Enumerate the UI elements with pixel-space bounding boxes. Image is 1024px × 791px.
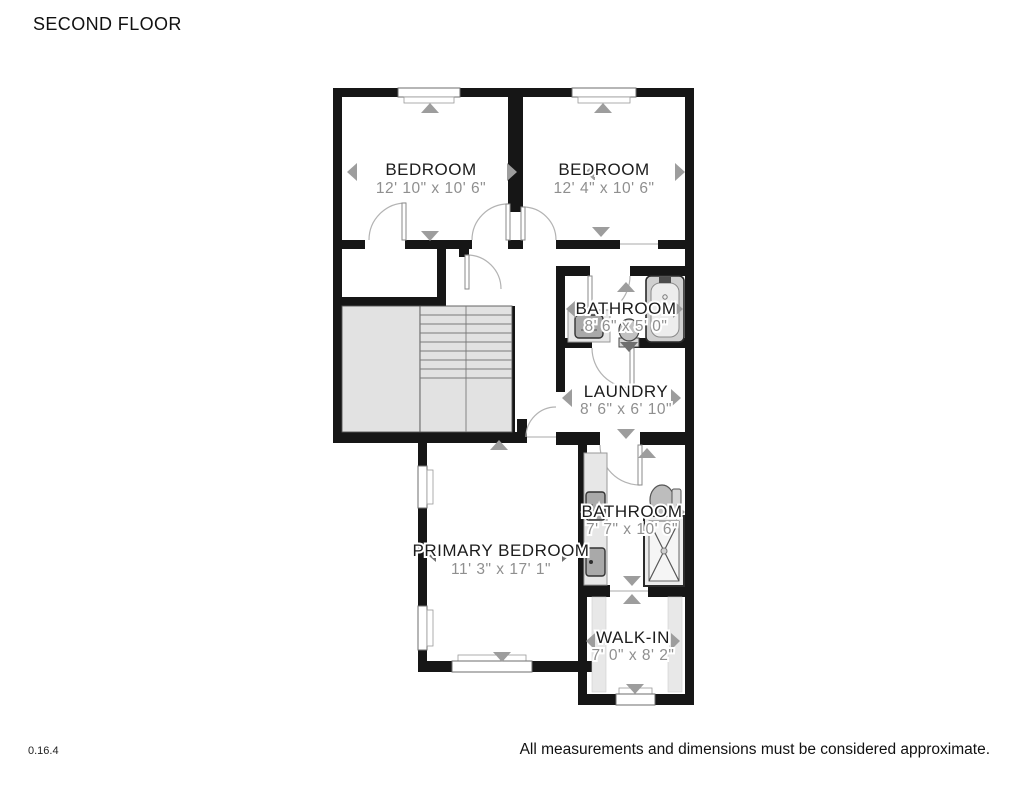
primary-bedroom-dims: 11' 3" x 17' 1" <box>451 561 551 578</box>
staircase <box>342 306 512 432</box>
laundry-label: LAUNDRY <box>584 382 668 401</box>
hall-bathroom-dims: 8' 6" x 5' 0" <box>585 318 668 335</box>
laundry-dims: 8' 6" x 6' 10" <box>580 401 672 418</box>
walk-in-label: WALK-IN <box>596 628 670 647</box>
primary-bedroom-label: PRIMARY BEDROOM <box>413 541 590 560</box>
bedroom-right-dims: 12' 4" x 10' 6" <box>553 180 654 197</box>
walk-in-dims: 7' 0" x 8' 2" <box>592 647 675 664</box>
disclaimer-text: All measurements and dimensions must be … <box>520 741 990 759</box>
version-number: 0.16.4 <box>28 745 59 757</box>
primary-bathroom-dims: 7' 7" x 10' 6" <box>586 521 678 538</box>
bedroom-left-dims: 12' 10" x 10' 6" <box>376 180 486 197</box>
bedroom-right-label: BEDROOM <box>558 160 649 179</box>
floor-plan-drawing: BEDROOM 12' 10" x 10' 6" BEDROOM 12' 4" … <box>0 0 1024 791</box>
hall-bathroom-label: BATHROOM <box>576 299 677 318</box>
primary-bathroom-label: BATHROOM <box>582 502 683 521</box>
bedroom-left-label: BEDROOM <box>385 160 476 179</box>
page-title: SECOND FLOOR <box>33 14 182 35</box>
floor-plan-page: SECOND FLOOR <box>0 0 1024 791</box>
